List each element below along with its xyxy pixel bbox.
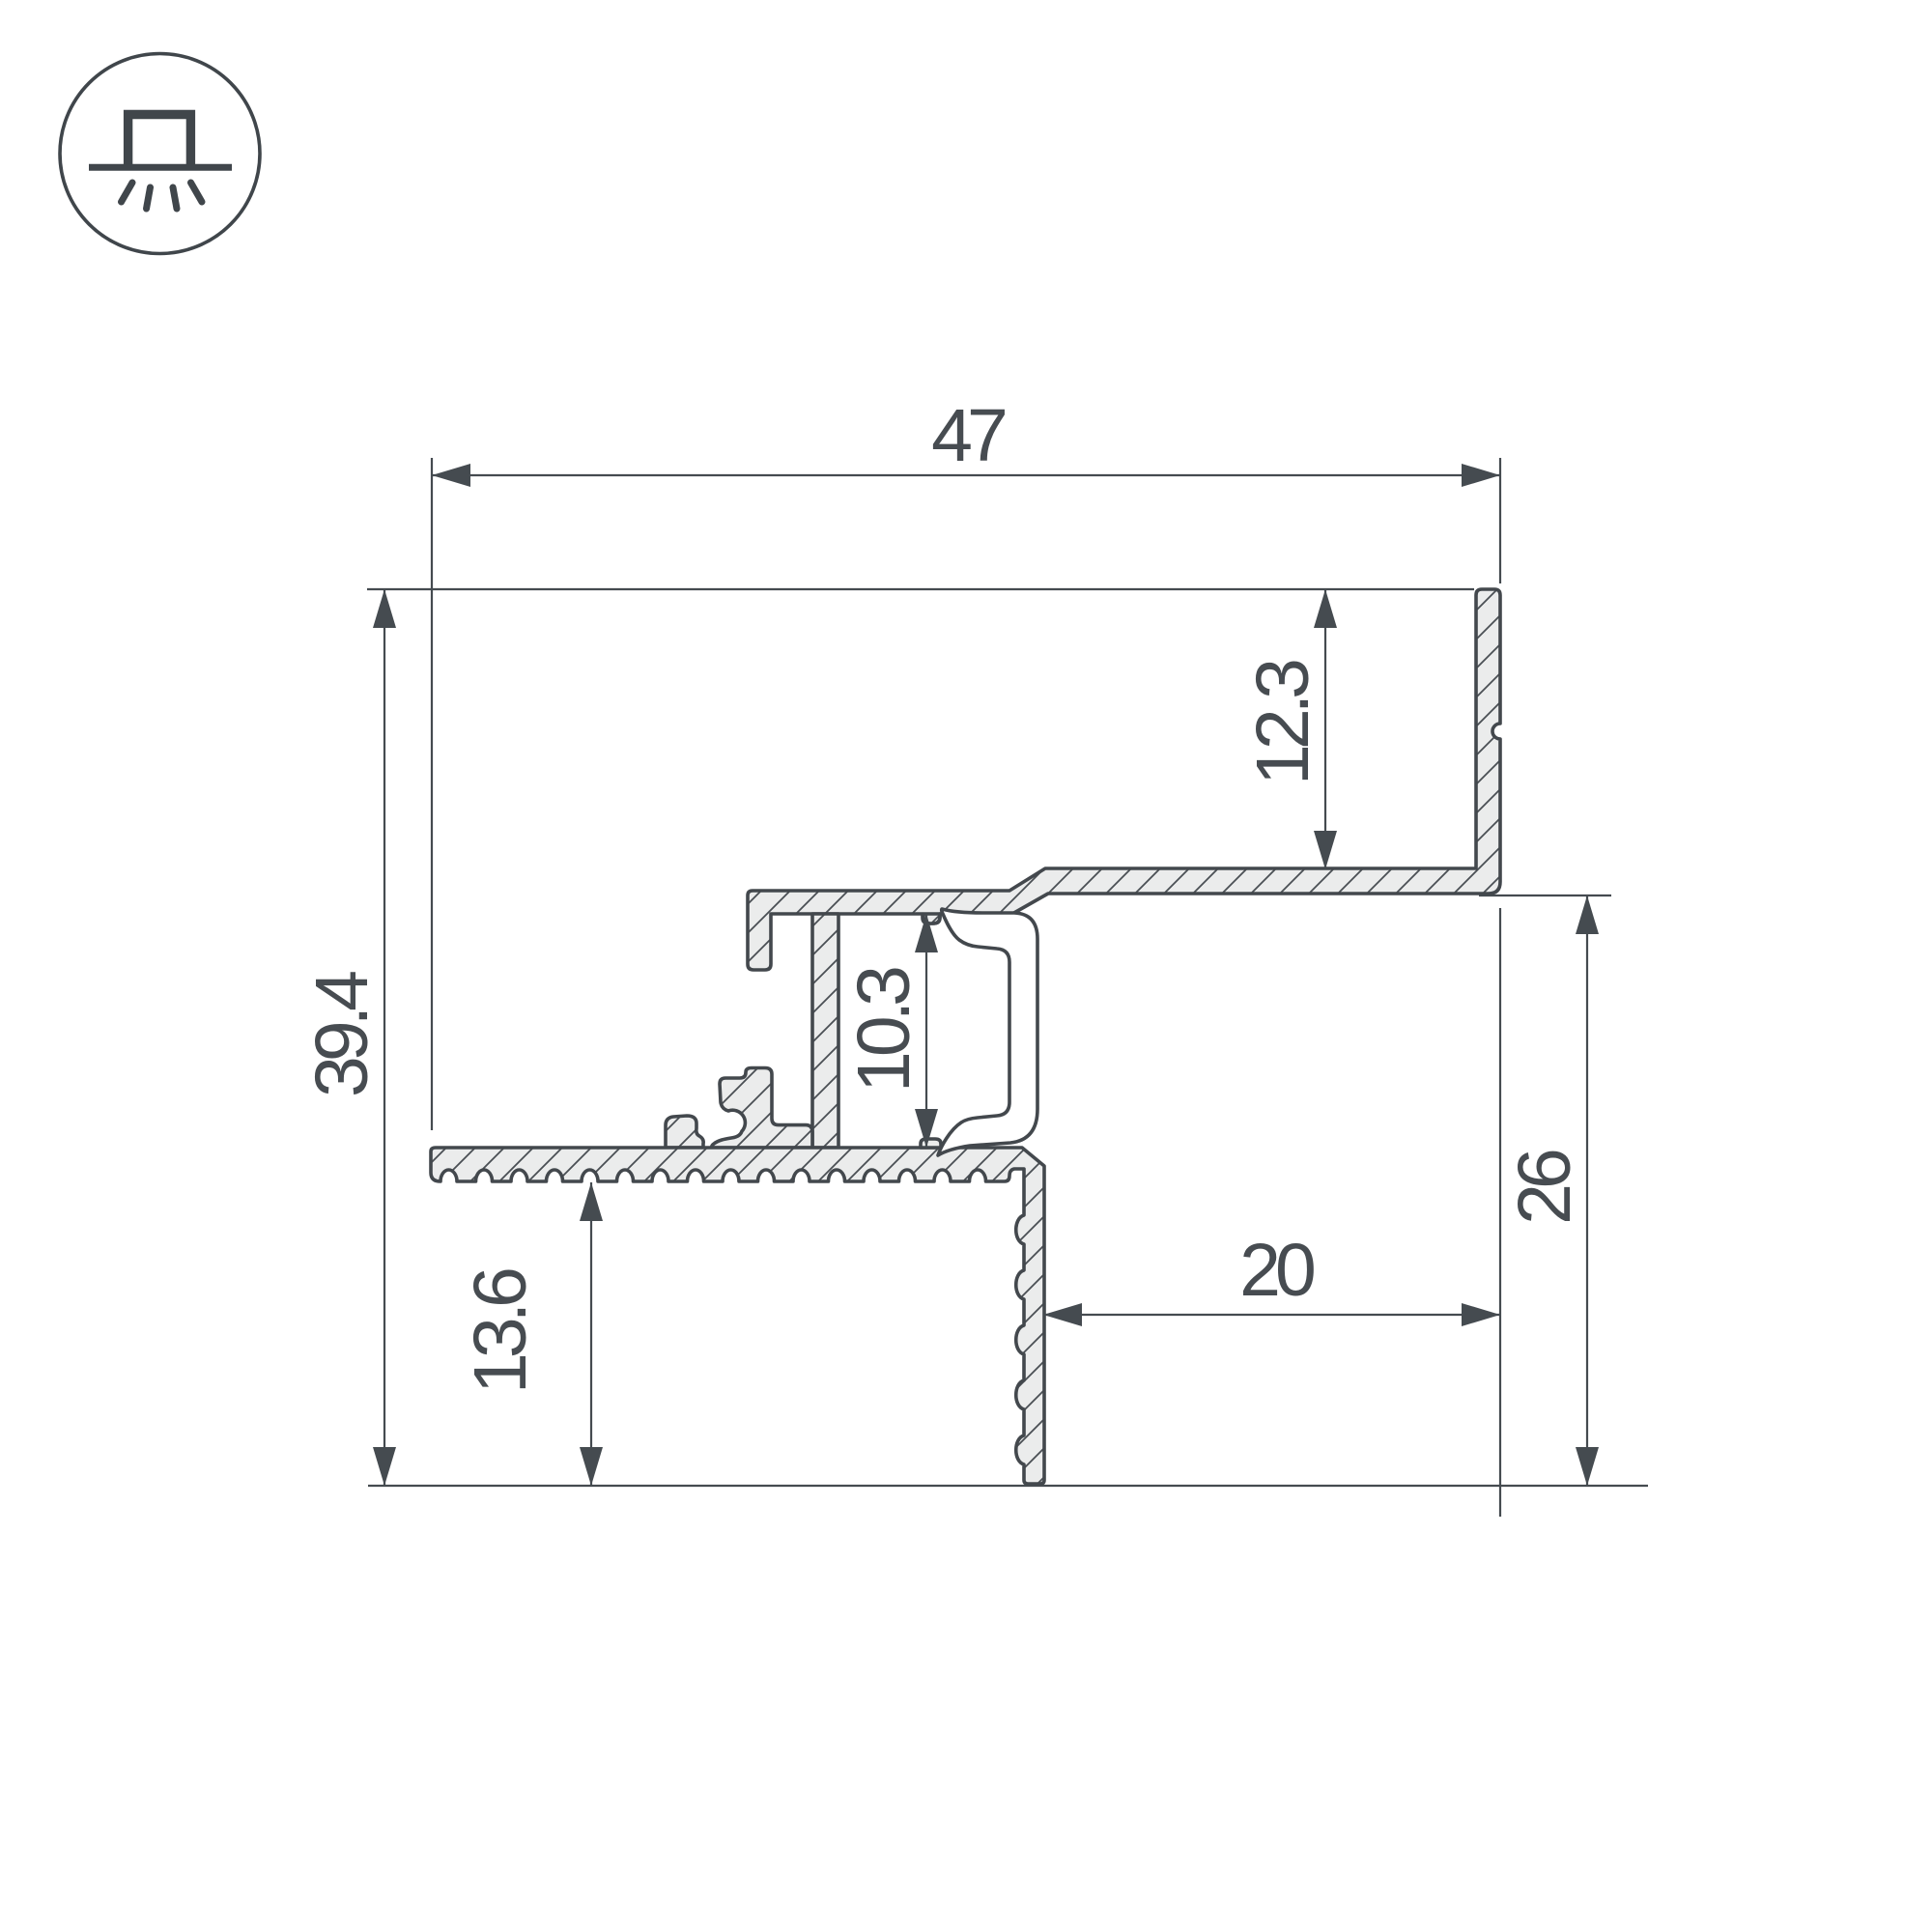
svg-text:39.4: 39.4: [300, 972, 384, 1097]
svg-text:47: 47: [931, 394, 1005, 477]
svg-text:20: 20: [1239, 1229, 1314, 1312]
svg-text:13.6: 13.6: [459, 1269, 542, 1394]
svg-text:26: 26: [1503, 1151, 1586, 1225]
svg-text:10.3: 10.3: [842, 968, 925, 1093]
svg-text:12.3: 12.3: [1241, 661, 1324, 785]
